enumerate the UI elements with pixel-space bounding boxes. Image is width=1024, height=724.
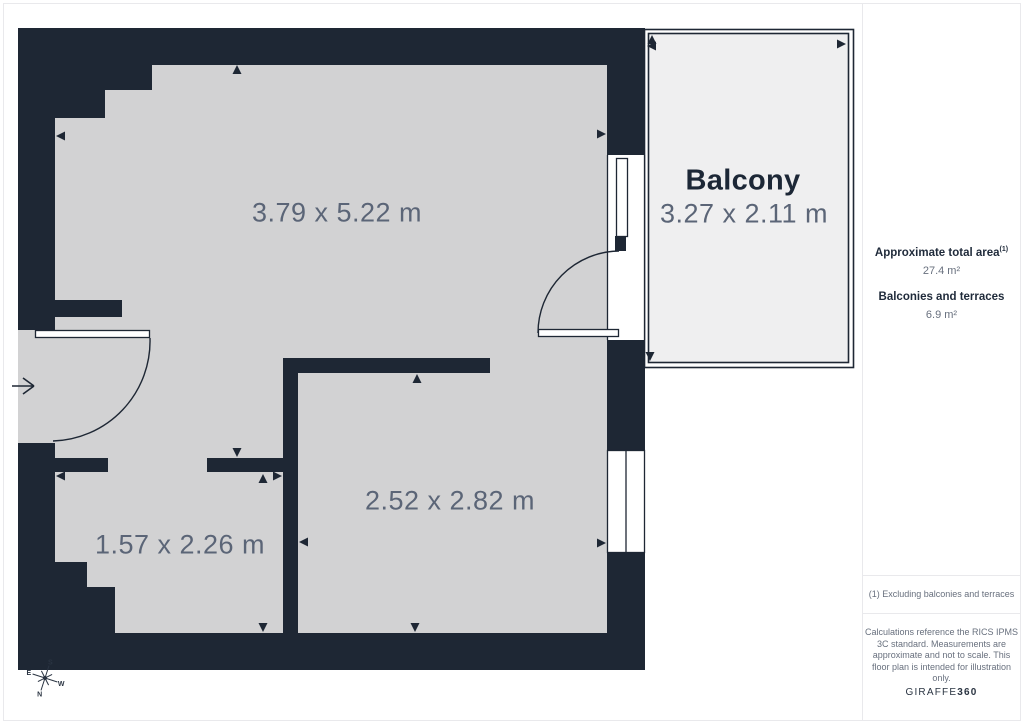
giraffe360-logo: GIRAFFE360 — [863, 687, 1020, 698]
balcony-title: Balcony — [686, 165, 801, 198]
bottom-left-room-dimensions: 1.57 x 2.26 m — [95, 530, 265, 561]
window — [607, 450, 645, 553]
bottom-right-room-dimensions: 2.52 x 2.82 m — [365, 486, 535, 517]
sidebar-section-divider — [863, 613, 1020, 614]
brand-number: 360 — [957, 687, 977, 698]
compass-east-label: E — [26, 670, 31, 677]
total-area-label: Approximate total area(1) — [863, 246, 1020, 259]
compass-north-label: N — [37, 692, 42, 699]
balconies-area-label: Balconies and terraces — [863, 291, 1020, 303]
compass-south-label: S — [48, 659, 53, 666]
footnote-marker: (1) — [1000, 246, 1009, 253]
area-summary: Approximate total area(1) 27.4 m² Balcon… — [863, 246, 1020, 321]
compass-west-label: W — [58, 681, 65, 688]
main-room-dimensions: 3.79 x 5.22 m — [252, 198, 422, 229]
floor-plan-page: N E S W 3.79 x 5.22 m 2.52 x 2.82 m 1.57… — [0, 0, 1024, 724]
disclaimer-text: Calculations reference the RICS IPMS 3C … — [863, 627, 1020, 685]
brand-name: GIRAFFE — [905, 687, 957, 698]
balcony-dimensions: 3.27 x 2.11 m — [660, 199, 828, 230]
disclaimer: Calculations reference the RICS IPMS 3C … — [863, 627, 1020, 685]
area-footnote: (1) Excluding balconies and terraces — [863, 575, 1020, 613]
balconies-area-value: 6.9 m² — [863, 309, 1020, 321]
floor-plan-drawing: N E S W — [0, 0, 862, 724]
total-area-value: 27.4 m² — [863, 265, 1020, 277]
